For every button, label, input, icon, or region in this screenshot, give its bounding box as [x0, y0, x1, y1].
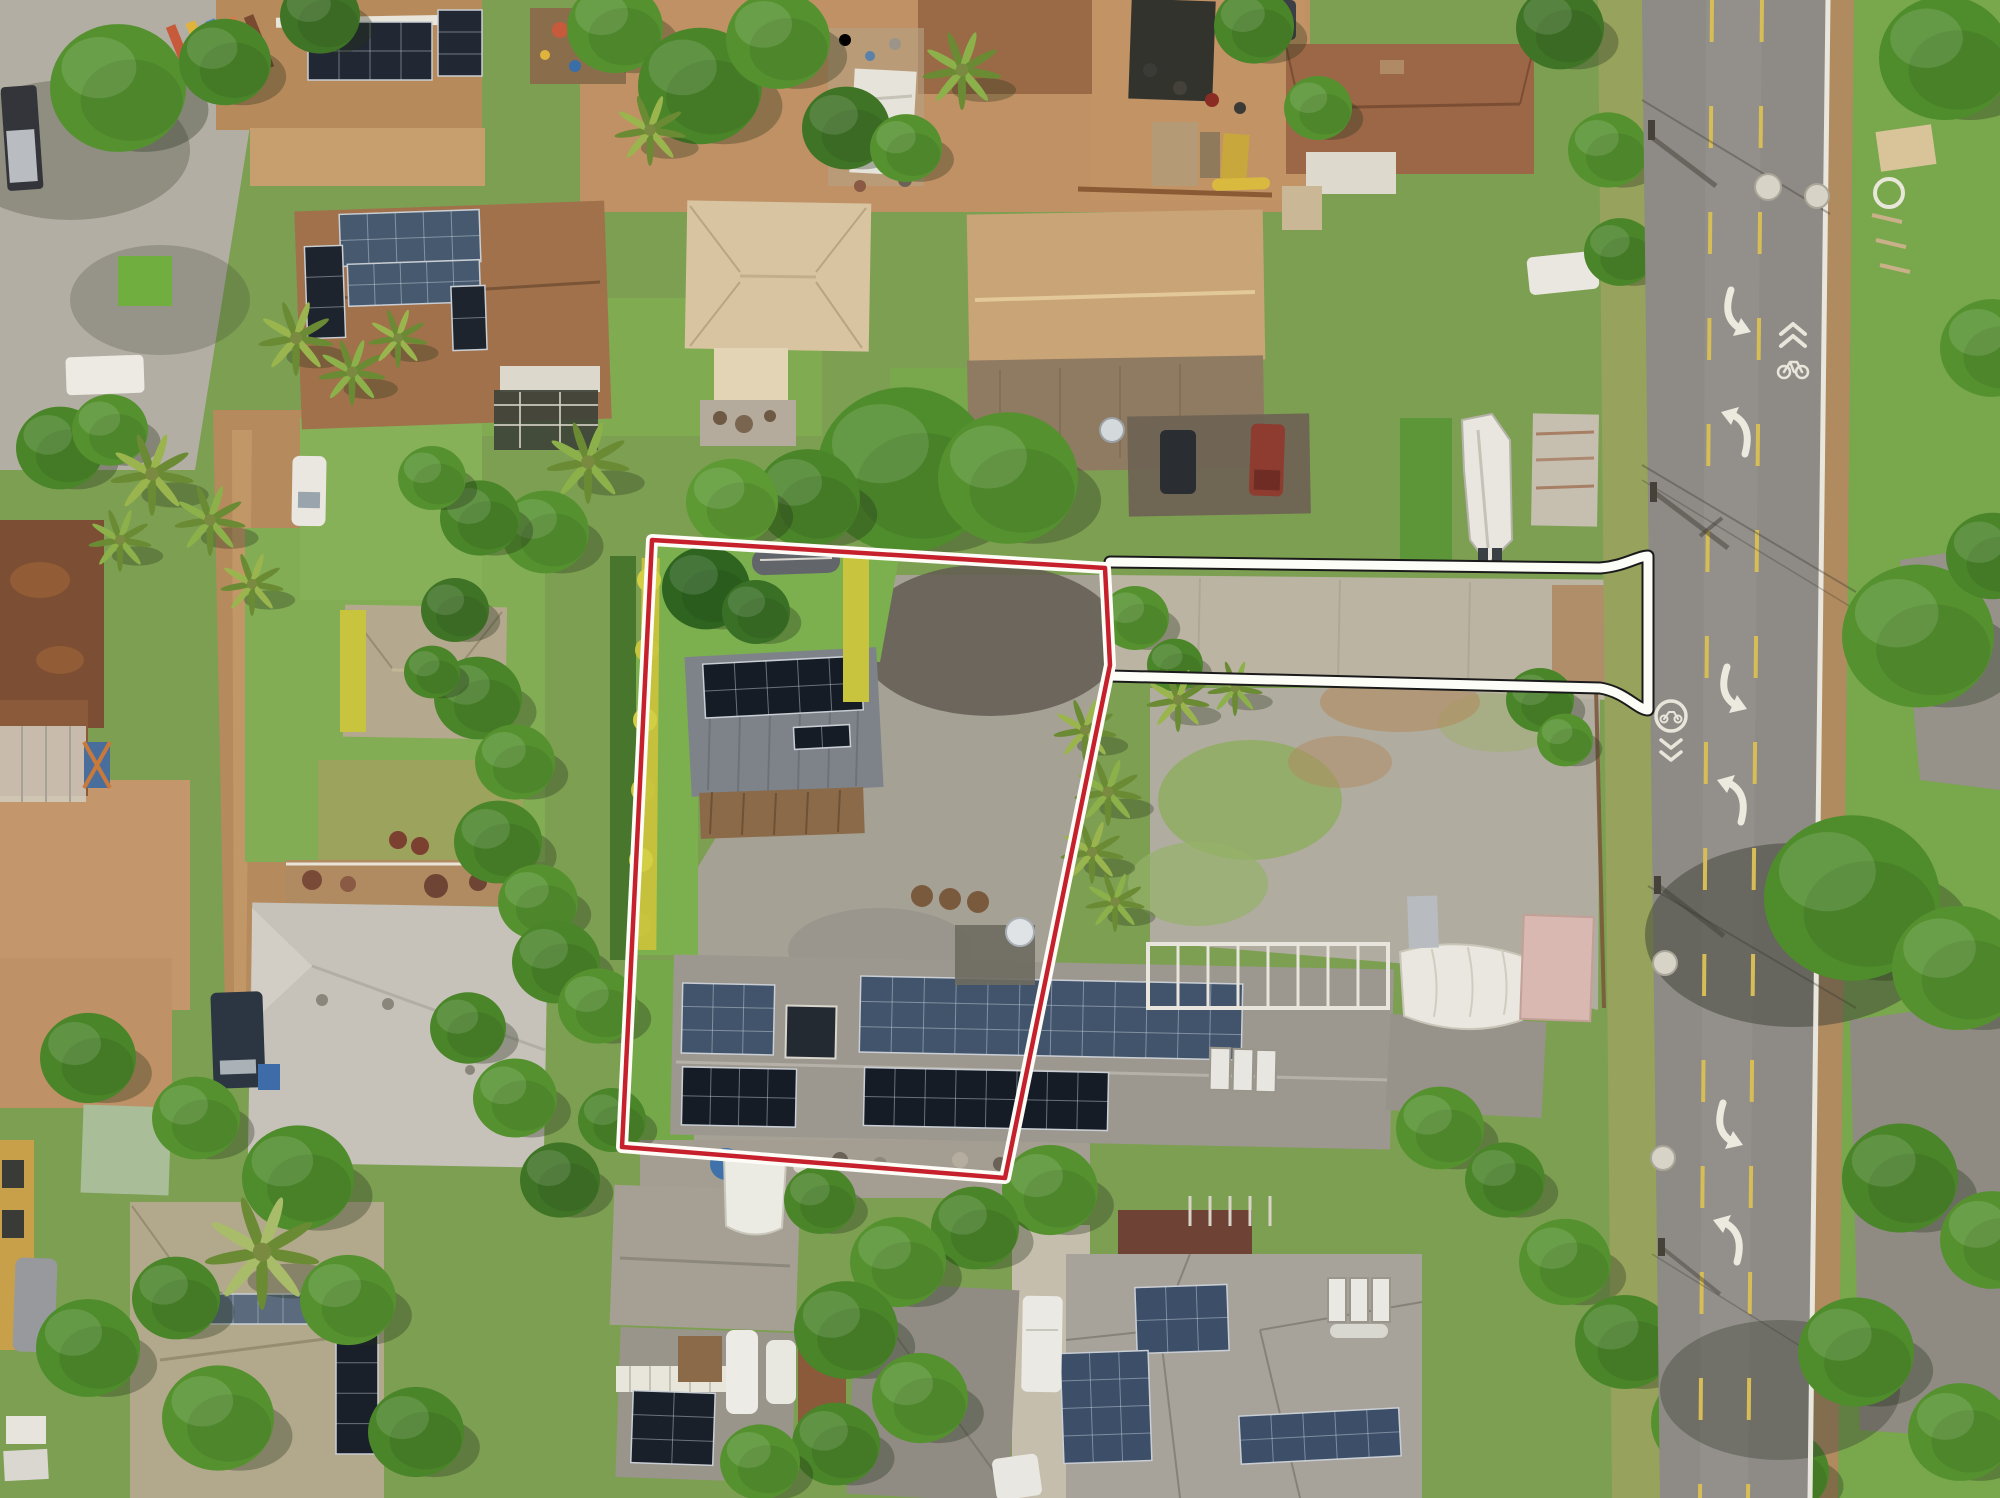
house-K-solar-array	[1239, 1408, 1401, 1464]
white-dish	[1006, 918, 1034, 946]
aerial-photo-stage	[0, 0, 2000, 1498]
truck-bed-silver	[6, 129, 38, 183]
jeep-dark-blue	[210, 991, 265, 1089]
house-F-roof	[0, 520, 104, 728]
manhole-cover	[1653, 951, 1677, 975]
white-trailer-items	[3, 1449, 49, 1481]
blue-bin	[258, 1064, 280, 1090]
white-shade-sail	[1400, 944, 1528, 1029]
house-D-roof	[918, 0, 1092, 94]
main-house-solar-lower-left	[681, 1067, 796, 1127]
white-pickup-top-left	[65, 355, 144, 396]
house-C-ridge	[740, 276, 816, 277]
hedge-row-boat-yard	[1400, 418, 1452, 560]
roof-rust-patch	[36, 646, 84, 674]
skylight	[1233, 1049, 1254, 1091]
utility-pole	[1654, 876, 1661, 894]
jeep-windshield	[220, 1059, 256, 1074]
satellite-dish	[1100, 418, 1124, 442]
metal-carport-rusty	[1531, 413, 1599, 526]
house-K-solar-array	[1135, 1284, 1229, 1353]
main-house-solar-upper-left	[681, 983, 774, 1055]
roof-rust-patch	[10, 562, 70, 598]
solar-thermal-panel	[785, 1005, 836, 1058]
house-I-solar-array	[631, 1391, 715, 1466]
silver-shed	[1407, 895, 1439, 948]
yellow-building-window	[2, 1210, 24, 1238]
yellow-excavator	[1220, 133, 1249, 183]
house-E-vent	[1380, 60, 1404, 74]
adu-solar-array-large	[703, 656, 864, 718]
skylight	[1350, 1278, 1368, 1322]
courtyard-maroon-deck	[1118, 1210, 1252, 1256]
greenhouse-roof	[0, 726, 86, 802]
house-E-shed	[1282, 186, 1322, 230]
red-pickup-cab	[1254, 470, 1281, 491]
picnic-table	[1875, 124, 1936, 171]
utility-pole	[1648, 120, 1655, 140]
skylight	[1256, 1050, 1277, 1092]
house-I-deck	[678, 1336, 722, 1382]
skylight	[1328, 1278, 1346, 1322]
white-car-se	[991, 1453, 1042, 1498]
skylight	[1210, 1048, 1231, 1090]
white-car-parked	[726, 1330, 758, 1414]
suv-windshield	[298, 492, 320, 508]
utility-pole	[1658, 1238, 1665, 1256]
white-car-parked	[766, 1340, 796, 1404]
manhole-cover	[1651, 1146, 1675, 1170]
utility-pole	[1650, 482, 1657, 502]
hedge-yellow-shed-G	[340, 610, 366, 732]
adu-solar-panel-small	[793, 725, 850, 750]
house-B-solar-array	[451, 285, 487, 350]
yellow-kayak	[1212, 177, 1270, 191]
white-suv-lane	[291, 456, 326, 527]
suv-under-carport	[1160, 430, 1196, 494]
house-D2-roof-upper	[967, 209, 1266, 364]
rust-streak	[1536, 432, 1594, 434]
house-A-porch-roof	[250, 128, 485, 186]
shed-smaller	[1200, 132, 1220, 178]
shed-small	[1152, 122, 1198, 186]
yellow-building-window	[2, 1160, 24, 1188]
black-tarp-garden	[1128, 0, 1215, 101]
tree-shadow-on-gravel	[858, 564, 1122, 716]
white-pickup-se	[1021, 1296, 1063, 1393]
white-trailer-items	[6, 1416, 46, 1444]
manhole-cover	[1755, 174, 1781, 200]
manhole-cover	[1805, 184, 1829, 208]
lot-dirt-patch	[1288, 736, 1392, 788]
hedge-box-top-left	[118, 256, 172, 306]
house-B-solar-array	[304, 245, 345, 338]
house-K-solar-array	[1060, 1350, 1152, 1463]
skylight	[1372, 1278, 1390, 1322]
house-B-deck-rail	[500, 366, 600, 392]
main-house-solar-lower-right	[863, 1067, 1108, 1130]
roof-cylinder-vent	[1330, 1324, 1388, 1338]
pink-canopy	[1520, 915, 1594, 1021]
aerial-drone-photo	[0, 0, 2000, 1498]
house-B-solar-array	[339, 210, 481, 267]
rust-streak	[1536, 458, 1594, 460]
house-A-solar-array	[438, 10, 482, 76]
rust-streak	[1536, 486, 1594, 488]
main-house-solar-upper-right	[859, 976, 1243, 1060]
hedge-yellow-parcel-right	[843, 556, 869, 702]
